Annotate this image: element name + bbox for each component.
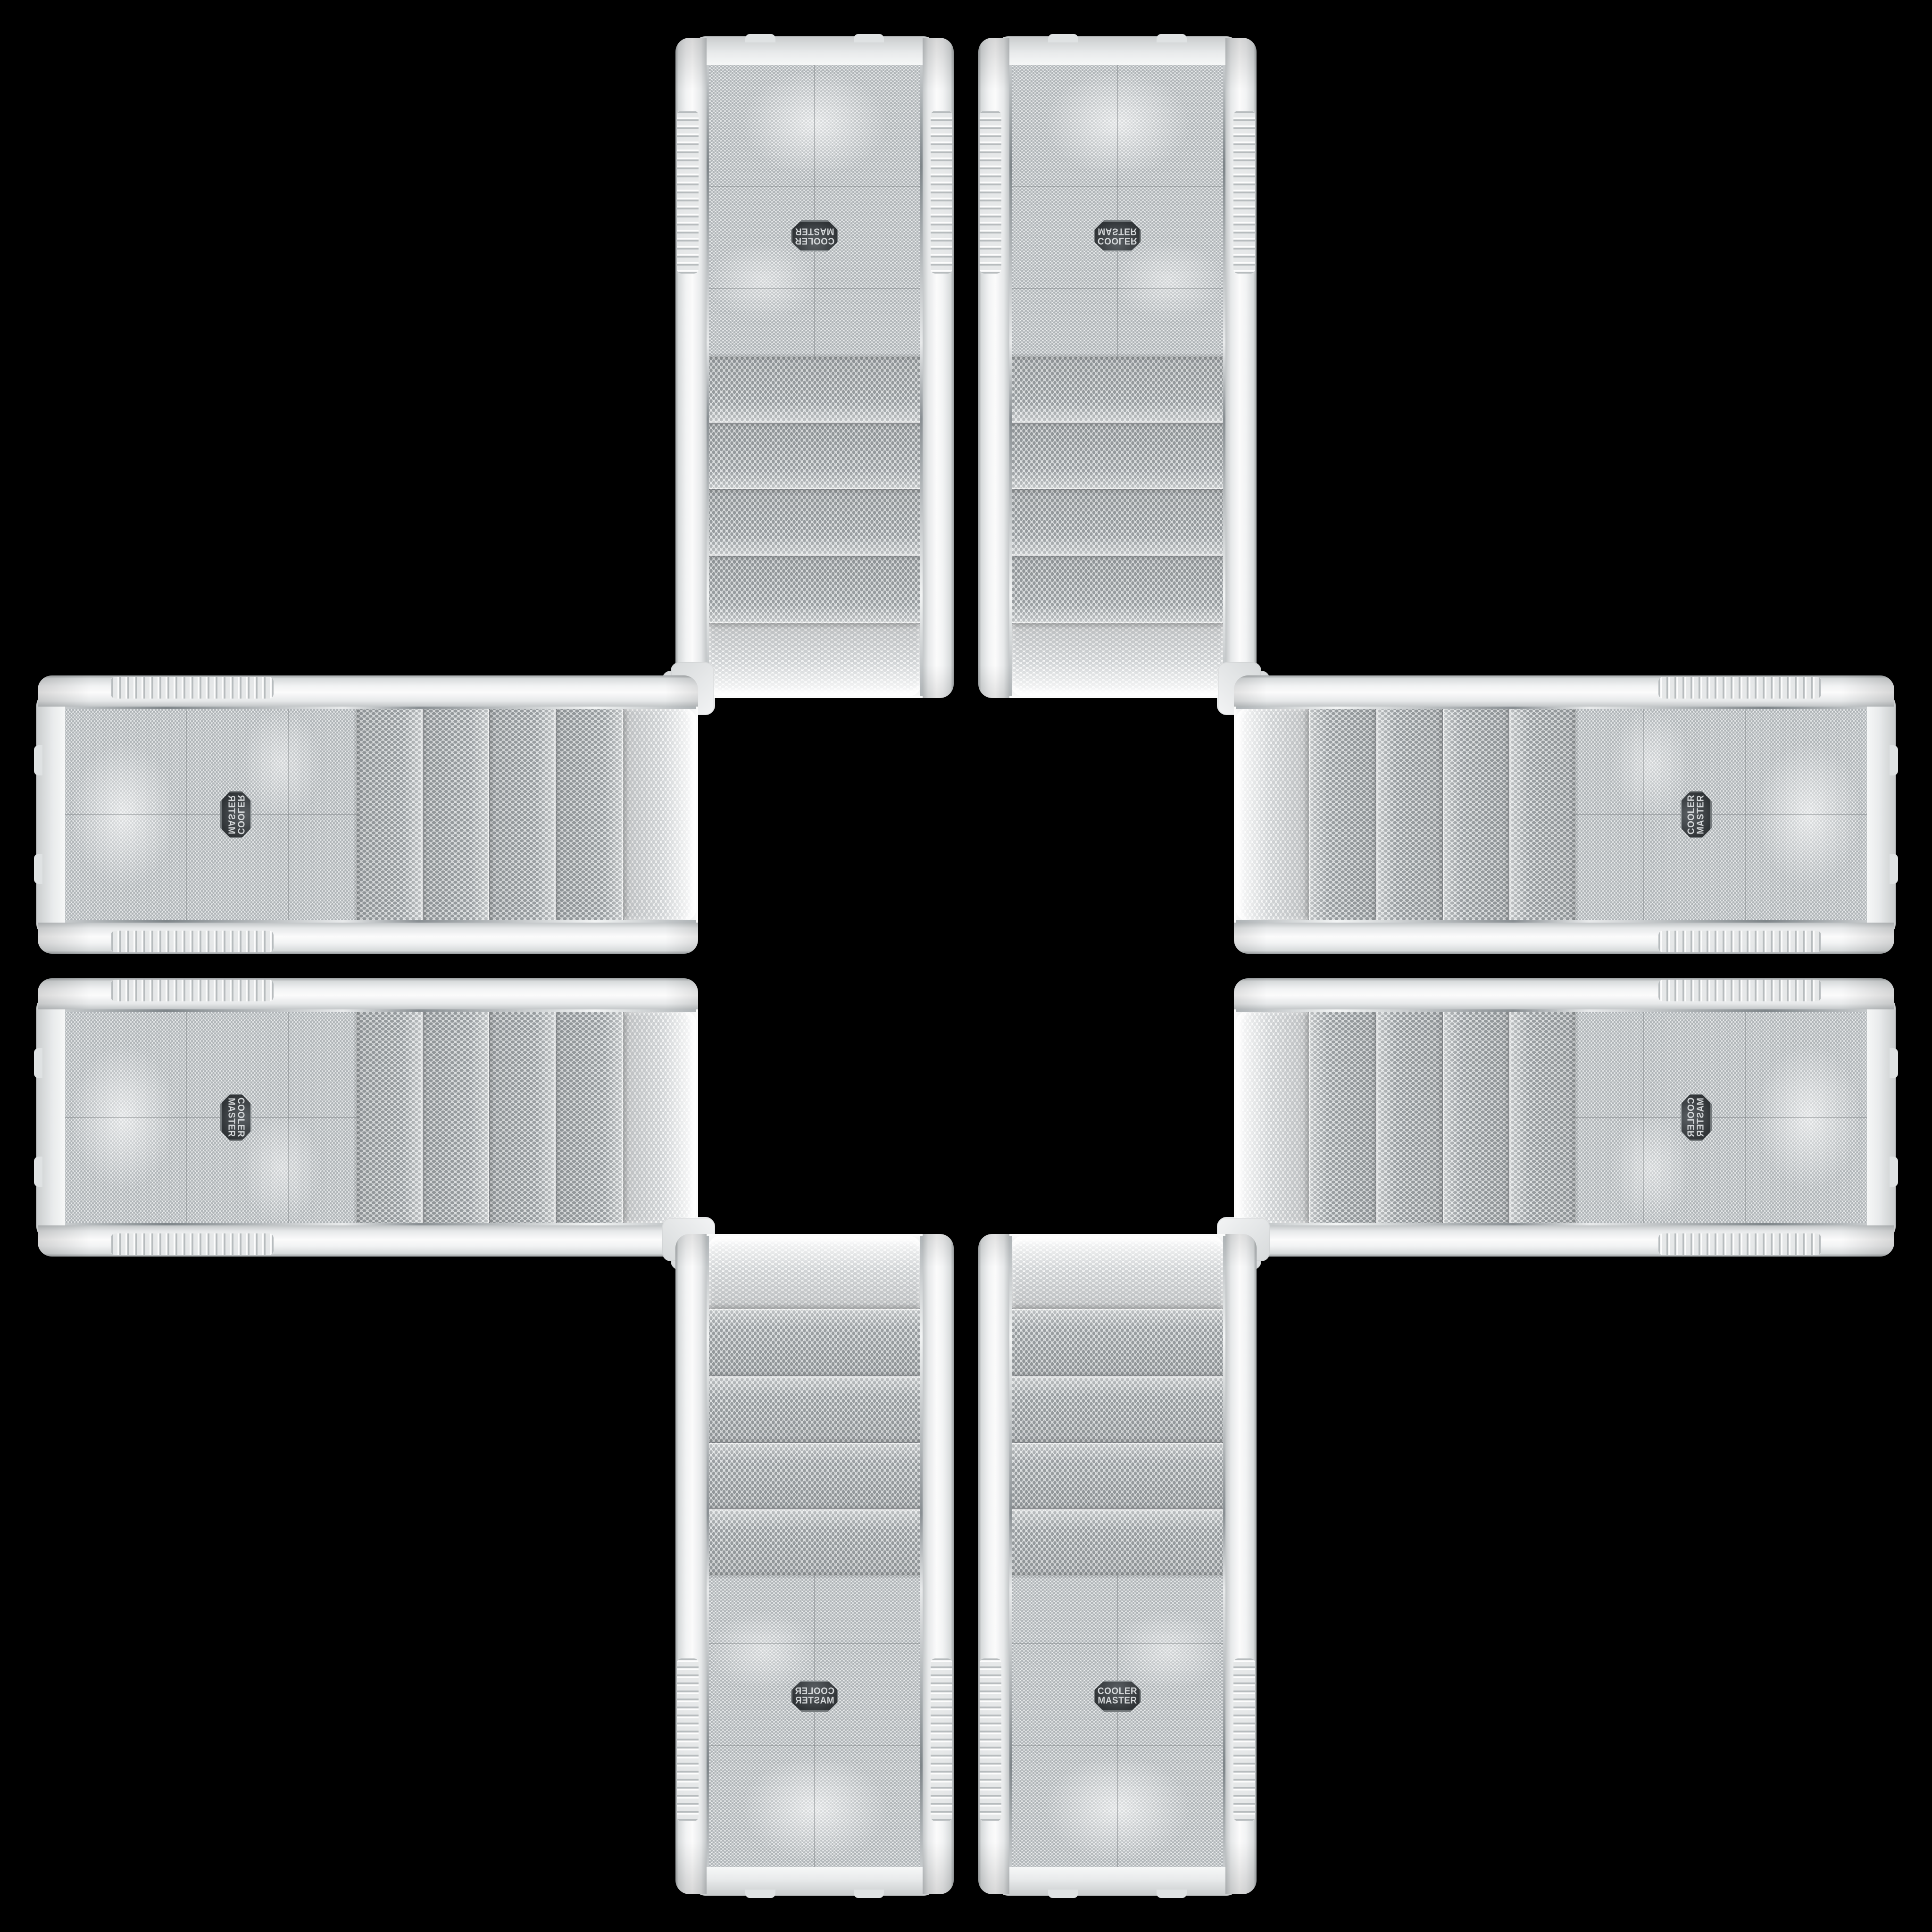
- grip-ribs: [111, 931, 274, 952]
- drive-bay-cover: [357, 1011, 424, 1224]
- case-foot: [745, 1890, 775, 1898]
- drive-bay-cover: [708, 490, 921, 557]
- case-panel-right-top: COOLER MASTER: [1234, 675, 1894, 954]
- case-foot: [34, 854, 42, 884]
- case-foot: [34, 1157, 42, 1187]
- mesh-top-bulge: [708, 622, 921, 696]
- front-mesh-area: COOLER MASTER: [1236, 1008, 1867, 1226]
- drive-bay-covers: [357, 708, 623, 921]
- intake-mesh: COOLER MASTER: [708, 65, 921, 357]
- case-panel-right-bottom: COOLER MASTER: [1234, 978, 1894, 1257]
- case-foot: [854, 34, 884, 42]
- case-foot: [1157, 34, 1187, 42]
- badge-text-line2: MASTER: [226, 1098, 236, 1137]
- case-front-panel: COOLER MASTER: [1234, 978, 1894, 1257]
- grip-ribs: [111, 980, 274, 1001]
- drive-bay-cover: [708, 1375, 921, 1442]
- case-panel-bottom-left: COOLER MASTER: [675, 1234, 954, 1894]
- drive-bay-cover: [1011, 424, 1224, 490]
- drive-bay-cover: [708, 1309, 921, 1375]
- drive-bay-covers: [1309, 1011, 1575, 1224]
- case-panel-top-right: COOLER MASTER: [978, 38, 1257, 698]
- cooler-master-badge: COOLER MASTER: [220, 1094, 251, 1141]
- side-rail-right: [1225, 1234, 1257, 1894]
- drive-bay-covers: [708, 1309, 921, 1575]
- grip-ribs: [931, 1658, 952, 1821]
- grip-ribs: [1658, 980, 1821, 1001]
- case-foot: [34, 745, 42, 775]
- badge-text-line2: MASTER: [795, 226, 834, 236]
- grip-ribs: [111, 1233, 274, 1255]
- front-mesh-area: COOLER MASTER: [65, 1008, 696, 1226]
- intake-mesh: COOLER MASTER: [65, 708, 357, 921]
- bottom-cap: [692, 36, 937, 68]
- drive-bay-cover: [708, 424, 921, 490]
- bottom-cap: [1864, 995, 1896, 1240]
- drive-bay-cover: [708, 1442, 921, 1508]
- badge-text-line2: MASTER: [1696, 1098, 1706, 1137]
- grip-ribs: [677, 1658, 699, 1821]
- drive-bay-cover: [1442, 708, 1508, 921]
- mesh-seam: [814, 1575, 815, 1867]
- grip-ribs: [980, 111, 1001, 274]
- mesh-top-bulge: [1011, 1236, 1224, 1310]
- cooler-master-badge: COOLER MASTER: [791, 220, 838, 251]
- intake-mesh: COOLER MASTER: [708, 1575, 921, 1867]
- badge-text-line1: COOLER: [1687, 795, 1697, 834]
- case-foot: [1048, 34, 1078, 42]
- drive-bay-cover: [1011, 1375, 1224, 1442]
- mesh-seam: [814, 65, 815, 357]
- case-foot: [1048, 1890, 1078, 1898]
- drive-bay-cover: [357, 708, 424, 921]
- side-rail-right: [1234, 675, 1894, 707]
- cooler-master-badge: COOLER MASTER: [791, 1681, 838, 1712]
- case-front-panel: COOLER MASTER: [38, 978, 698, 1257]
- case-foot: [1890, 854, 1898, 884]
- drive-bay-cover: [557, 708, 623, 921]
- badge-text-line2: MASTER: [795, 1696, 834, 1706]
- cooler-master-badge: COOLER MASTER: [220, 791, 251, 838]
- bottom-cap: [36, 995, 68, 1240]
- case-foot: [34, 1048, 42, 1078]
- grip-ribs: [980, 1658, 1001, 1821]
- mesh-seam: [1575, 1117, 1867, 1118]
- side-rail-right: [38, 675, 698, 707]
- case-panel-bottom-right: COOLER MASTER: [978, 1234, 1257, 1894]
- badge-text-line1: COOLER: [1687, 1098, 1697, 1137]
- drive-bay-cover: [424, 1011, 490, 1224]
- bottom-cap: [692, 1864, 937, 1896]
- mesh-top-bulge: [1011, 622, 1224, 696]
- drive-bay-cover: [1508, 1011, 1575, 1224]
- badge-text-line2: MASTER: [1696, 795, 1706, 834]
- drive-bay-cover: [1011, 490, 1224, 557]
- product-photo-canvas: COOLER MASTER: [0, 0, 1932, 1932]
- drive-bay-covers: [1011, 357, 1224, 623]
- drive-bay-cover: [1011, 357, 1224, 424]
- side-rail-right: [38, 1225, 698, 1257]
- case-foot: [854, 1890, 884, 1898]
- intake-mesh: COOLER MASTER: [1575, 708, 1867, 921]
- drive-bay-cover: [708, 357, 921, 424]
- bottom-cap: [1864, 692, 1896, 937]
- grip-ribs: [1658, 931, 1821, 952]
- case-foot: [1157, 1890, 1187, 1898]
- drive-bay-covers: [708, 357, 921, 623]
- case-foot: [1890, 745, 1898, 775]
- case-front-panel: COOLER MASTER: [1234, 675, 1894, 954]
- case-panel-left-top: COOLER MASTER: [38, 675, 698, 954]
- front-mesh-area: COOLER MASTER: [1008, 65, 1226, 696]
- drive-bay-cover: [1375, 708, 1442, 921]
- badge-text-line1: COOLER: [236, 795, 246, 834]
- drive-bay-cover: [1309, 708, 1375, 921]
- mesh-seam: [1575, 814, 1867, 815]
- cooler-master-badge: COOLER MASTER: [1094, 220, 1141, 251]
- mesh-top-bulge: [708, 1236, 921, 1310]
- drive-bay-cover: [557, 1011, 623, 1224]
- front-mesh-area: COOLER MASTER: [706, 1236, 924, 1867]
- mesh-seam: [65, 814, 357, 815]
- case-panel-top-left: COOLER MASTER: [675, 38, 954, 698]
- drive-bay-covers: [1309, 708, 1575, 921]
- front-mesh-area: COOLER MASTER: [706, 65, 924, 696]
- case-front-panel: COOLER MASTER: [978, 38, 1257, 698]
- cooler-master-badge: COOLER MASTER: [1681, 1094, 1712, 1141]
- side-rail-right: [1225, 38, 1257, 698]
- bottom-cap: [995, 36, 1240, 68]
- cooler-master-badge: COOLER MASTER: [1094, 1681, 1141, 1712]
- grip-ribs: [111, 677, 274, 699]
- badge-text-line1: COOLER: [236, 1098, 246, 1137]
- mesh-top-bulge: [1236, 708, 1310, 921]
- case-foot: [745, 34, 775, 42]
- side-rail-left: [38, 923, 698, 954]
- mesh-top-bulge: [622, 708, 696, 921]
- case-front-panel: COOLER MASTER: [675, 1234, 954, 1894]
- mesh-seam: [1117, 1575, 1118, 1867]
- badge-text-line2: MASTER: [226, 795, 236, 834]
- side-rail-left: [978, 38, 1009, 698]
- side-rail-left: [978, 1234, 1009, 1894]
- drive-bay-cover: [1011, 1442, 1224, 1508]
- grip-ribs: [1658, 677, 1821, 699]
- bottom-cap: [995, 1864, 1240, 1896]
- badge-text-line1: COOLER: [1098, 1687, 1137, 1697]
- bottom-cap: [36, 692, 68, 937]
- grip-ribs: [1233, 1658, 1255, 1821]
- side-rail-left: [923, 38, 954, 698]
- cooler-master-badge: COOLER MASTER: [1681, 791, 1712, 838]
- drive-bay-cover: [424, 708, 490, 921]
- side-rail-right: [675, 1234, 707, 1894]
- badge-text-line1: COOLER: [795, 1687, 834, 1697]
- grip-ribs: [1658, 1233, 1821, 1255]
- drive-bay-covers: [1011, 1309, 1224, 1575]
- badge-text-line1: COOLER: [795, 236, 834, 246]
- side-rail-left: [38, 978, 698, 1009]
- side-rail-left: [1234, 978, 1894, 1009]
- front-mesh-area: COOLER MASTER: [65, 706, 696, 924]
- drive-bay-cover: [708, 1508, 921, 1575]
- case-front-panel: COOLER MASTER: [675, 38, 954, 698]
- badge-text-line2: MASTER: [1098, 226, 1137, 236]
- case-front-panel: COOLER MASTER: [38, 675, 698, 954]
- mesh-seam: [65, 1117, 357, 1118]
- intake-mesh: COOLER MASTER: [1575, 1011, 1867, 1224]
- intake-mesh: COOLER MASTER: [65, 1011, 357, 1224]
- case-front-panel: COOLER MASTER: [978, 1234, 1257, 1894]
- drive-bay-cover: [708, 557, 921, 623]
- drive-bay-cover: [1508, 708, 1575, 921]
- drive-bay-cover: [490, 1011, 557, 1224]
- side-rail-right: [675, 38, 707, 698]
- mesh-top-bulge: [1236, 1011, 1310, 1224]
- side-rail-left: [1234, 923, 1894, 954]
- intake-mesh: COOLER MASTER: [1011, 1575, 1224, 1867]
- drive-bay-cover: [1011, 557, 1224, 623]
- drive-bay-cover: [1375, 1011, 1442, 1224]
- drive-bay-cover: [490, 708, 557, 921]
- case-foot: [1890, 1157, 1898, 1187]
- drive-bay-cover: [1011, 1309, 1224, 1375]
- drive-bay-covers: [357, 1011, 623, 1224]
- badge-text-line2: MASTER: [1098, 1696, 1137, 1706]
- front-mesh-area: COOLER MASTER: [1236, 706, 1867, 924]
- grip-ribs: [1233, 111, 1255, 274]
- mesh-top-bulge: [622, 1011, 696, 1224]
- side-rail-right: [1234, 1225, 1894, 1257]
- front-mesh-area: COOLER MASTER: [1008, 1236, 1226, 1867]
- side-rail-left: [923, 1234, 954, 1894]
- drive-bay-cover: [1442, 1011, 1508, 1224]
- mesh-seam: [1117, 65, 1118, 357]
- drive-bay-cover: [1309, 1011, 1375, 1224]
- grip-ribs: [677, 111, 699, 274]
- grip-ribs: [931, 111, 952, 274]
- badge-text-line1: COOLER: [1098, 236, 1137, 246]
- case-panel-left-bottom: COOLER MASTER: [38, 978, 698, 1257]
- case-foot: [1890, 1048, 1898, 1078]
- drive-bay-cover: [1011, 1508, 1224, 1575]
- intake-mesh: COOLER MASTER: [1011, 65, 1224, 357]
